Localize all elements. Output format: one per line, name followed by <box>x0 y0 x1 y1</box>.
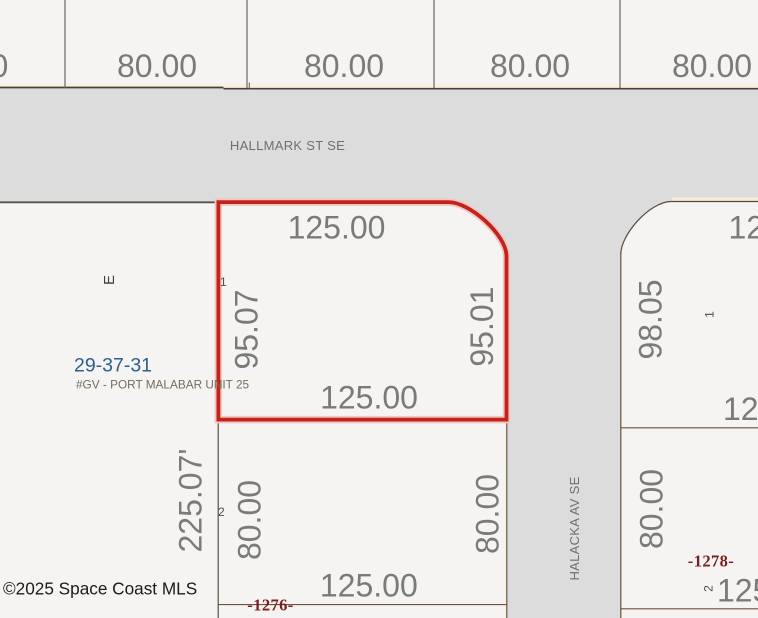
svg-text:125.00: 125.00 <box>729 209 758 245</box>
svg-text:#GV - PORT MALABAR UNIT 25: #GV - PORT MALABAR UNIT 25 <box>76 378 250 392</box>
svg-text:2: 2 <box>702 585 716 592</box>
svg-text:80.00: 80.00 <box>117 48 197 84</box>
svg-text:225.07': 225.07' <box>172 449 208 553</box>
svg-text:1: 1 <box>703 311 717 318</box>
svg-text:©2025 Space Coast MLS: ©2025 Space Coast MLS <box>3 579 197 599</box>
svg-text:1: 1 <box>220 275 227 289</box>
svg-text:95.07: 95.07 <box>228 289 264 369</box>
svg-text:98.05: 98.05 <box>632 279 668 359</box>
svg-text:80.00: 80.00 <box>672 48 752 84</box>
svg-text:80.00: 80.00 <box>231 480 267 560</box>
svg-text:95.01: 95.01 <box>464 287 500 367</box>
svg-text:80.00: 80.00 <box>304 48 384 84</box>
svg-text:125.00: 125.00 <box>288 210 386 246</box>
svg-text:-1276-: -1276- <box>247 596 293 615</box>
svg-text:-1278-: -1278- <box>688 552 734 571</box>
svg-text:125.00: 125.00 <box>717 572 758 608</box>
svg-text:80.00: 80.00 <box>490 48 570 84</box>
svg-text:80.00: 80.00 <box>0 48 8 84</box>
svg-text:125.00: 125.00 <box>320 568 418 604</box>
svg-text:2: 2 <box>218 505 225 519</box>
svg-text:80.00: 80.00 <box>469 474 505 554</box>
svg-text:HALLMARK ST SE: HALLMARK ST SE <box>230 138 345 153</box>
svg-text:29-37-31: 29-37-31 <box>74 355 152 377</box>
svg-text:125.00: 125.00 <box>723 391 758 427</box>
svg-text:80.00: 80.00 <box>633 469 669 549</box>
svg-text:HALACKA AV SE: HALACKA AV SE <box>567 476 582 580</box>
svg-text:125.00: 125.00 <box>320 380 418 416</box>
svg-text:E: E <box>101 275 118 285</box>
